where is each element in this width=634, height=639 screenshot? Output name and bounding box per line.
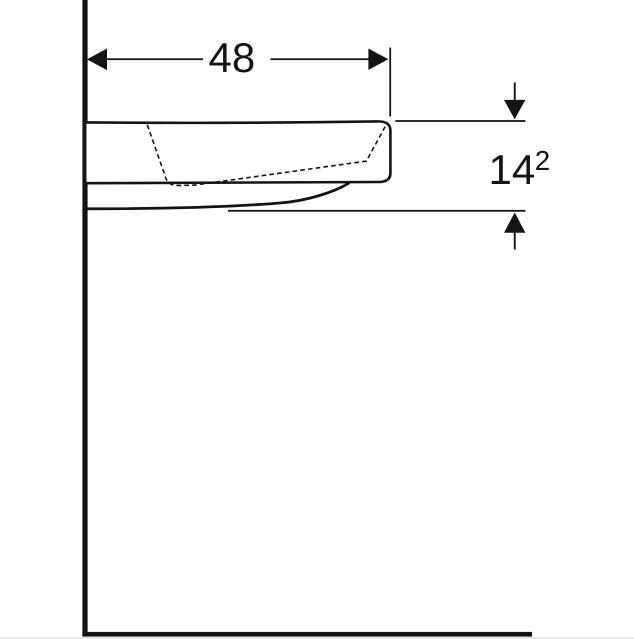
svg-text:48: 48	[209, 34, 256, 81]
svg-text:14: 14	[489, 146, 536, 193]
svg-text:2: 2	[535, 145, 550, 176]
